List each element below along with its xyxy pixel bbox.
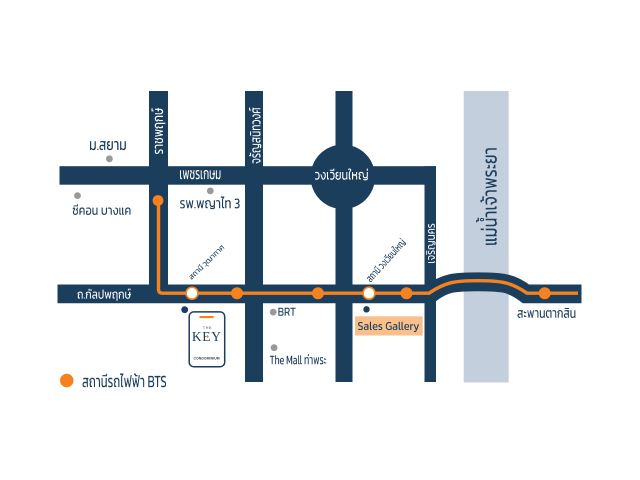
svg-text:CONDOMINIUM: CONDOMINIUM [194,356,220,360]
